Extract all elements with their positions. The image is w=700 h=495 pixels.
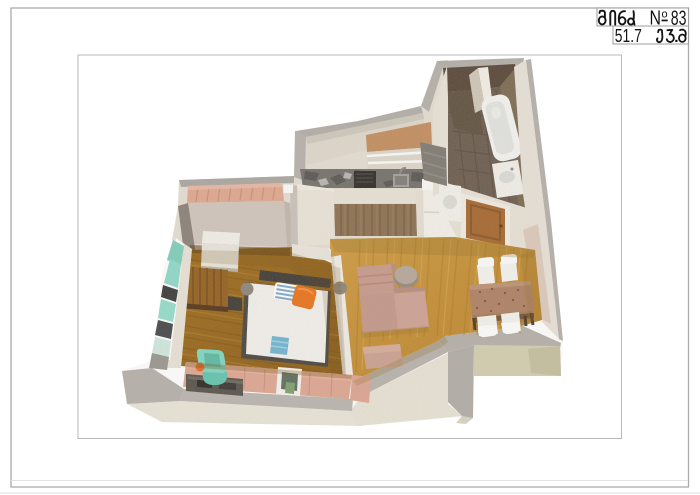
svg-text:51.7: 51.7 xyxy=(615,26,642,46)
svg-text:N: N xyxy=(650,8,662,30)
svg-text:83: 83 xyxy=(671,7,687,30)
svg-text:o: o xyxy=(662,9,668,21)
